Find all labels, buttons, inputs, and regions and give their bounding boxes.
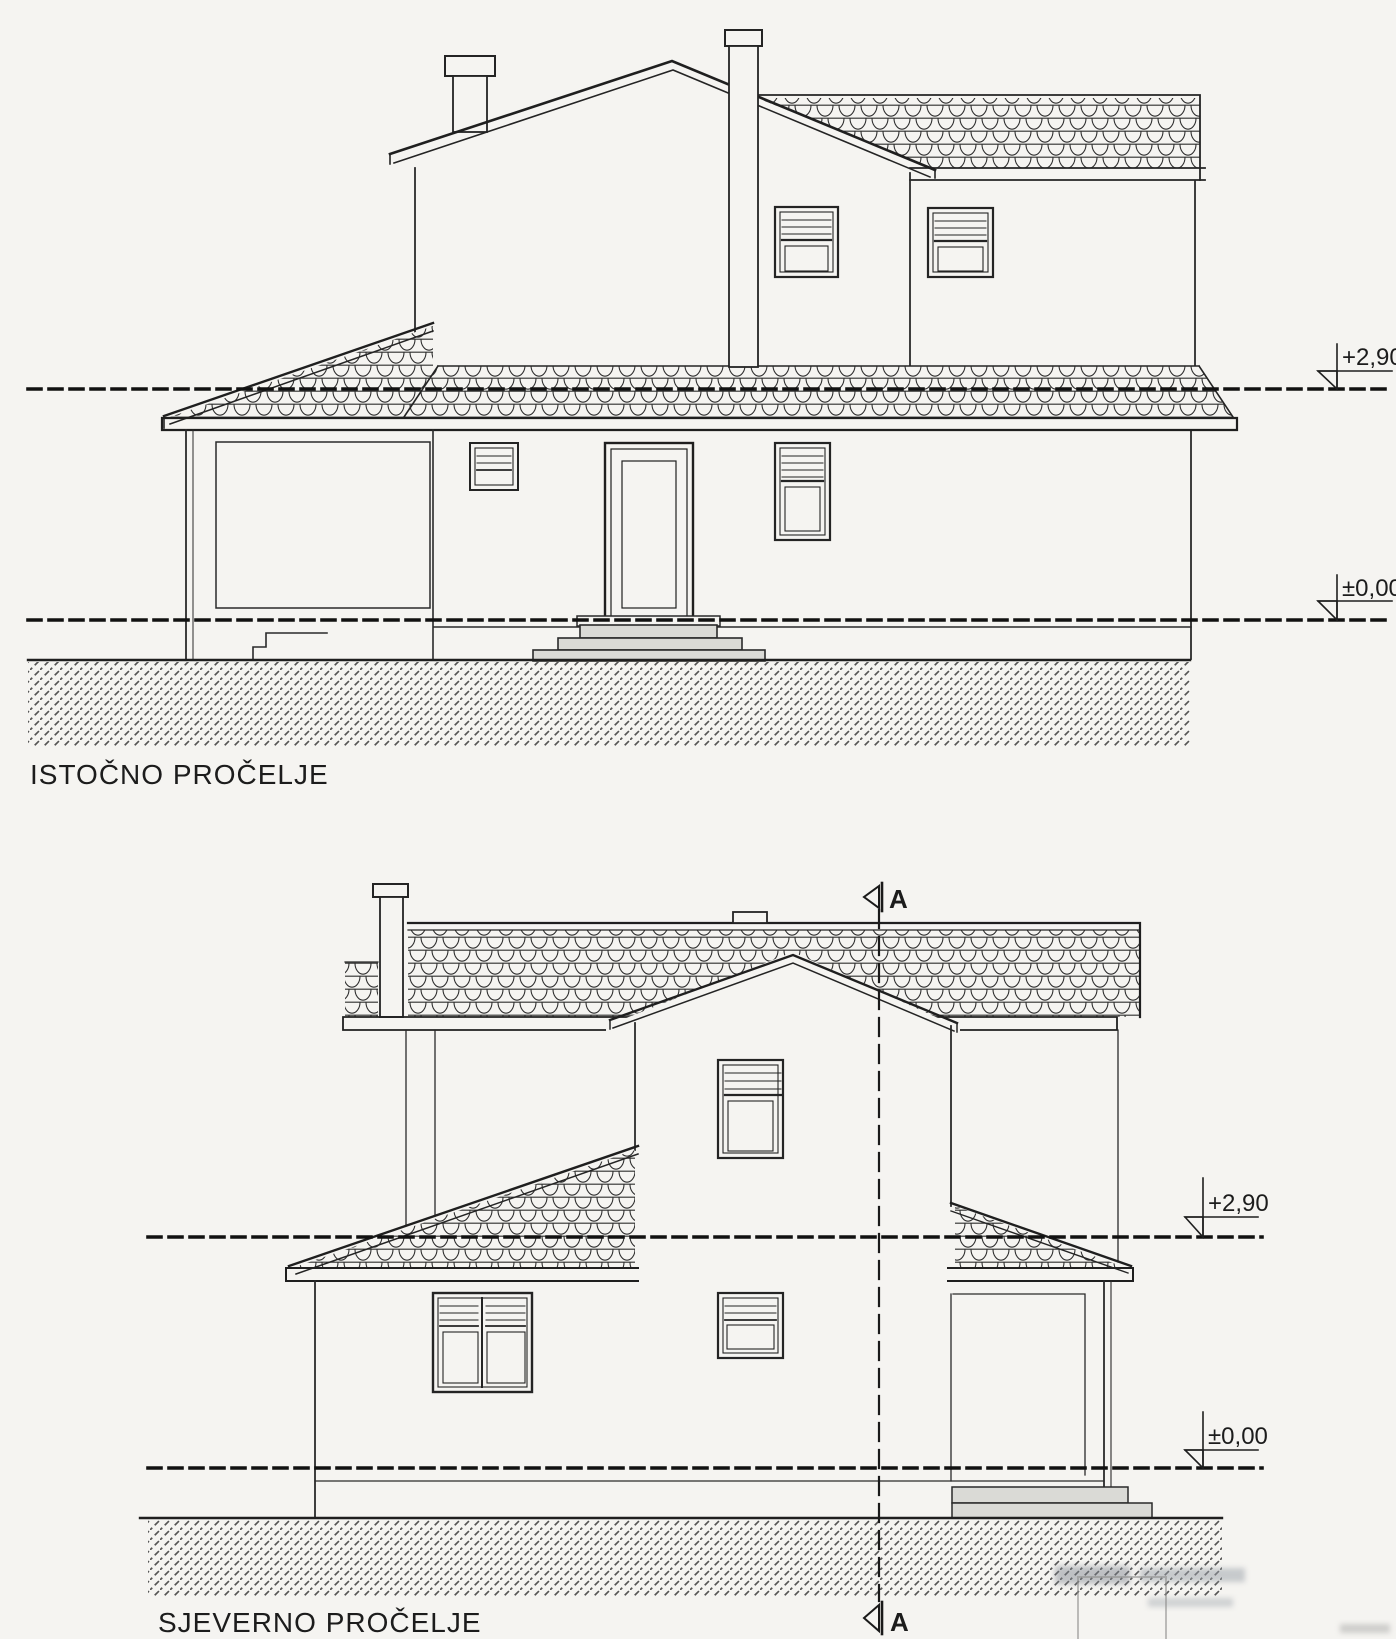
- north-section-label-top: A: [889, 884, 908, 914]
- north-left-porch-roof: [286, 1146, 638, 1281]
- north-elevation: A A +2,90 ±0,00 SJEVERNO PROČELJE: [140, 883, 1269, 1638]
- north-right-porch-post: [1104, 1281, 1111, 1487]
- east-rear-roof: [755, 95, 1205, 180]
- east-terrace-opening: [216, 442, 430, 608]
- north-right-porch-roof: [948, 1203, 1133, 1281]
- east-lower-window: [775, 443, 830, 540]
- east-level-label-zero: ±0,00: [1342, 575, 1396, 602]
- north-gable-wall-fill: [606, 952, 960, 1481]
- east-level-label-upper: +2,90: [1342, 344, 1396, 371]
- east-upper-window-right: [928, 208, 993, 277]
- east-entry-steps: [533, 625, 765, 661]
- north-ground-hatch: [148, 1520, 1222, 1597]
- faded-stamp: [1055, 1566, 1390, 1639]
- north-chimney: [373, 884, 408, 1017]
- north-level-label-upper: +2,90: [1208, 1190, 1269, 1217]
- north-section-arrow-bottom: [864, 1602, 882, 1634]
- east-center-chimney: [725, 30, 762, 367]
- east-entrance-door: [605, 443, 693, 623]
- east-upper-window-left: [775, 207, 838, 277]
- north-title: SJEVERNO PROČELJE: [158, 1607, 482, 1638]
- east-lower-walls: [433, 430, 1191, 660]
- east-porch-post: [186, 430, 193, 660]
- east-eave-fascia: [162, 418, 1237, 430]
- north-ridge-chimney-cap: [733, 912, 767, 923]
- east-terrace-steps: [253, 633, 327, 660]
- north-steps: [952, 1487, 1152, 1518]
- north-level-label-zero: ±0,00: [1208, 1423, 1268, 1450]
- east-lower-roof: [404, 366, 1233, 417]
- east-elevation: +2,90 ±0,00 ISTOČNO PROČELJE: [28, 30, 1396, 790]
- north-section-label-bottom: A: [890, 1607, 909, 1637]
- drawing-sheet: +2,90 ±0,00 ISTOČNO PROČELJE: [0, 0, 1396, 1639]
- north-porch-opening: [951, 1294, 1085, 1481]
- elevation-sheet-svg: +2,90 ±0,00 ISTOČNO PROČELJE: [0, 0, 1396, 1639]
- east-small-window: [470, 443, 518, 490]
- north-section-arrow-top: [864, 883, 882, 911]
- east-title: ISTOČNO PROČELJE: [30, 759, 329, 790]
- east-ground-hatch: [28, 662, 1190, 747]
- north-double-window: [433, 1293, 532, 1392]
- east-porch-roof: [164, 323, 433, 428]
